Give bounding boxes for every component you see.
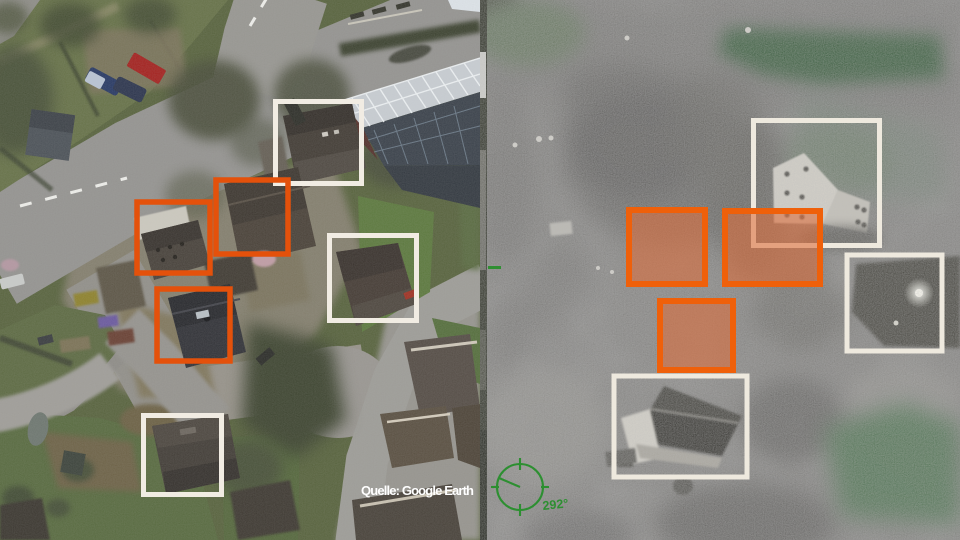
svg-text:Quelle: Google Earth: Quelle: Google Earth <box>361 483 474 498</box>
svg-text:292°: 292° <box>542 496 569 513</box>
